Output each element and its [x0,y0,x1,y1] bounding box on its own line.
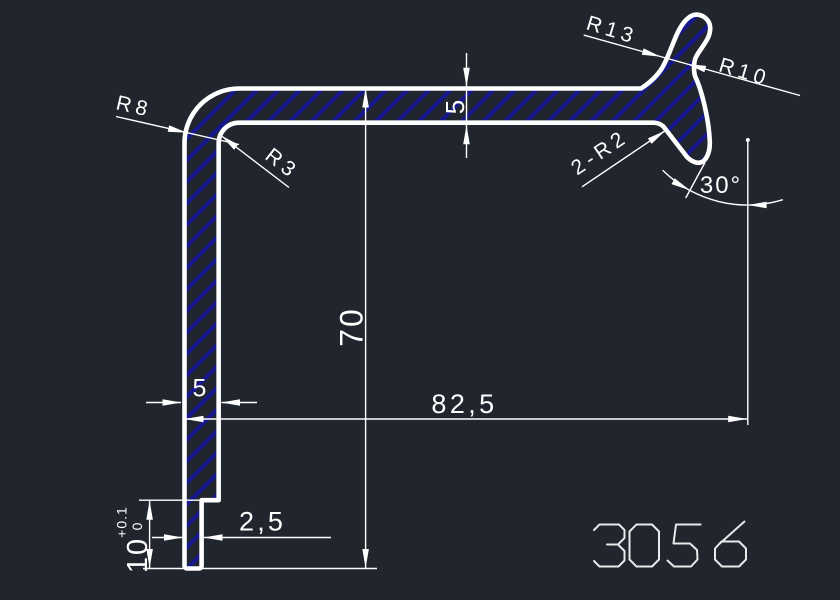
svg-text:70: 70 [334,307,370,347]
svg-text:5: 5 [193,375,209,403]
svg-text:0: 0 [129,522,145,531]
svg-text:2,5: 2,5 [239,507,286,537]
svg-text:30°: 30° [700,172,742,199]
svg-text:5: 5 [440,98,470,114]
svg-text:10: 10 [122,537,154,573]
svg-text:+0.1: +0.1 [114,506,130,538]
svg-text:82,5: 82,5 [431,389,497,419]
